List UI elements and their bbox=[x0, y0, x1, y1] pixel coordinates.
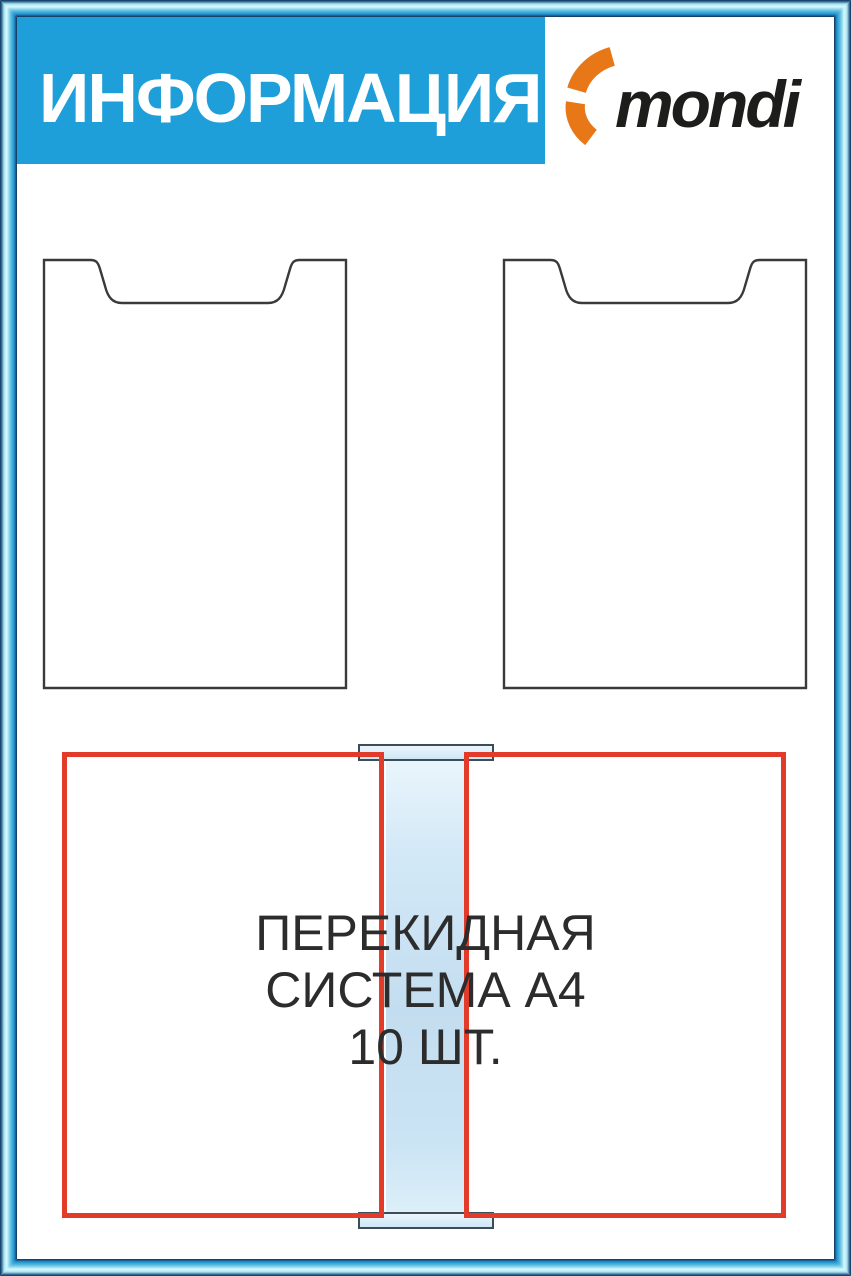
logo-wordmark: mondi bbox=[615, 59, 798, 149]
mondi-flame-icon bbox=[564, 46, 618, 146]
frame-bottom bbox=[0, 1259, 851, 1276]
board-title: ИНФОРМАЦИЯ bbox=[39, 58, 540, 138]
a4-pocket-left bbox=[42, 258, 348, 690]
flip-system-label-line2: СИСТЕМА А4 bbox=[17, 962, 834, 1019]
flip-system-label-line1: ПЕРЕКИДНАЯ bbox=[17, 905, 834, 962]
logo-area: mondi bbox=[545, 17, 834, 164]
frame-top bbox=[0, 0, 851, 17]
flip-system-label-line3: 10 ШТ. bbox=[17, 1019, 834, 1076]
flip-system-label: ПЕРЕКИДНАЯ СИСТЕМА А4 10 ШТ. bbox=[17, 905, 834, 1076]
frame-right bbox=[834, 0, 851, 1276]
frame-left bbox=[0, 0, 17, 1276]
a4-pocket-right bbox=[502, 258, 808, 690]
info-stand-board: ИНФОРМАЦИЯ mondi ПЕРЕКИДНАЯ СИСТЕМА А4 1… bbox=[0, 0, 851, 1276]
header-banner: ИНФОРМАЦИЯ bbox=[17, 17, 545, 164]
